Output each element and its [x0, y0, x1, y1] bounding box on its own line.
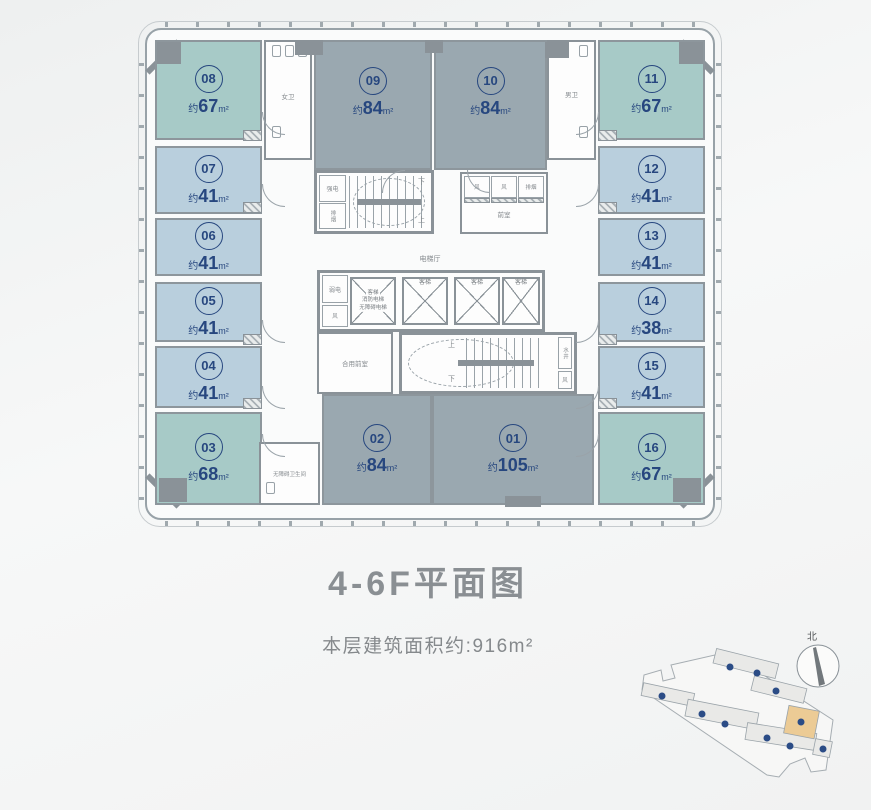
weak-electric-room: 弱电: [322, 275, 348, 303]
stair-landing: [458, 360, 534, 366]
unit-area-label: 约41m²: [631, 254, 672, 273]
up-label: 上: [448, 342, 455, 350]
unit-number-circle: 15: [638, 352, 666, 380]
hatch-block: [598, 334, 617, 345]
door-arc: [576, 184, 599, 207]
strong-electric-room: 强电: [319, 175, 346, 202]
hatch-block: [464, 198, 490, 203]
unit-number-circle: 03: [195, 433, 223, 461]
unit-area-label: 约41m²: [188, 187, 229, 206]
building-marker-dot: [754, 670, 761, 677]
shared-anteroom-room: 合用前室: [317, 332, 393, 394]
water-shaft: 水井: [558, 337, 572, 369]
building-marker-dot: [787, 743, 794, 750]
shared-anteroom-label: 合用前室: [319, 361, 391, 368]
unit-area-label: 约84m²: [353, 99, 394, 118]
unit-area-label: 约41m²: [631, 384, 672, 403]
elevator-hall-label: 电梯厅: [400, 256, 460, 264]
room-label: 男卫: [549, 92, 594, 99]
unit-number-circle: 12: [638, 155, 666, 183]
column-block: [159, 478, 187, 502]
door-arc: [576, 386, 599, 409]
column-block: [295, 40, 323, 55]
elevator-shaft: 客梯: [454, 277, 500, 325]
elevator-label: 客梯: [404, 280, 446, 287]
unit-number-circle: 06: [195, 222, 223, 250]
elevator-label: 客梯: [504, 280, 538, 287]
hatch-block: [598, 130, 617, 141]
hatch-block: [598, 202, 617, 213]
unit-area-label: 约67m²: [631, 97, 672, 116]
caption: 4-6F平面图 本层建筑面积约:916m²: [145, 556, 711, 658]
unit-area-label: 约67m²: [188, 97, 229, 116]
facade-ticks: [165, 22, 695, 27]
unit-number-circle: 08: [195, 65, 223, 93]
room-label: 女卫: [266, 94, 310, 101]
column-block: [545, 42, 569, 58]
down-label: 下: [418, 179, 425, 187]
unit-area-label: 约84m²: [357, 456, 398, 475]
unit-number-circle: 10: [477, 67, 505, 95]
column-block: [673, 478, 701, 502]
building-marker-dot: [699, 711, 706, 718]
unit-area-label: 约41m²: [188, 254, 229, 273]
floor-plan: 08 约67m² 07 约41m² 06 约41m² 05 约41m² 04 约…: [145, 28, 715, 520]
stairwell-top: 强电 排烟 下 上: [314, 170, 434, 234]
hatch-block: [243, 130, 262, 141]
stairwell-bottom: 上 下 水井 风: [399, 332, 577, 394]
unit-number-circle: 13: [638, 222, 666, 250]
unit-05: 05 约41m²: [155, 282, 262, 342]
hatch-block: [243, 334, 262, 345]
elevator-label: 客梯 消防电梯 无障碍电梯: [352, 290, 394, 312]
building-marker-dot: [764, 735, 771, 742]
unit-area-label: 约67m²: [631, 465, 672, 484]
unit-area-label: 约41m²: [631, 187, 672, 206]
anteroom-label: 前室: [462, 212, 546, 219]
column-block: [679, 42, 703, 64]
smoke-exhaust-shaft: 排烟: [319, 203, 346, 229]
site-plan: 北: [628, 612, 868, 807]
vent-shaft: 风: [558, 371, 572, 389]
vent-shaft: 风: [491, 176, 517, 198]
building-marker-dot: [773, 688, 780, 695]
toilet-fixture: [285, 45, 294, 57]
facade-ticks: [716, 48, 721, 500]
elevator-label: 客梯: [456, 280, 498, 287]
door-arc: [262, 184, 285, 207]
hatch-block: [491, 198, 517, 203]
unit-14: 14 约38m²: [598, 282, 705, 342]
unit-09: 09 约84m²: [314, 40, 432, 170]
unit-number-circle: 07: [195, 155, 223, 183]
smoke-exhaust-shaft: 排烟: [518, 176, 544, 198]
north-label: 北: [807, 631, 817, 643]
page: 08 约67m² 07 约41m² 06 约41m² 05 约41m² 04 约…: [0, 0, 871, 810]
unit-number-circle: 04: [195, 352, 223, 380]
elevator-bank: 弱电 风 客梯 消防电梯 无障碍电梯 客梯 客梯 客梯: [317, 270, 545, 332]
unit-06: 06 约41m²: [155, 218, 262, 276]
column-block: [157, 42, 181, 64]
down-label: 下: [448, 376, 455, 384]
room-label: 无障碍卫生间: [261, 472, 318, 478]
unit-number-circle: 02: [363, 424, 391, 452]
building-marker-dot: [820, 746, 827, 753]
building-marker-dot: [798, 719, 805, 726]
elevator-shaft-combined: 客梯 消防电梯 无障碍电梯: [350, 277, 396, 325]
door-arc: [262, 320, 285, 343]
elevator-shaft: 客梯: [502, 277, 540, 325]
vent-shaft: 风: [322, 305, 348, 327]
unit-01: 01 约105m²: [432, 394, 594, 505]
door-arc: [576, 320, 599, 343]
hatch-block: [243, 398, 262, 409]
facade-ticks: [165, 521, 695, 526]
womens-restroom: 女卫: [264, 40, 312, 160]
unit-number-circle: 11: [638, 65, 666, 93]
elevator-shaft: 客梯: [402, 277, 448, 325]
building-marker-dot: [727, 664, 734, 671]
column-block: [505, 496, 541, 507]
hatch-block: [518, 198, 544, 203]
stair-landing: [357, 199, 421, 205]
door-arc: [262, 386, 285, 409]
unit-area-label: 约105m²: [488, 456, 539, 475]
mens-restroom: 男卫: [547, 40, 596, 160]
unit-number-circle: 16: [638, 433, 666, 461]
unit-number-circle: 09: [359, 67, 387, 95]
unit-area-label: 约41m²: [188, 319, 229, 338]
unit-number-circle: 14: [638, 287, 666, 315]
unit-13: 13 约41m²: [598, 218, 705, 276]
facade-ticks: [139, 48, 144, 500]
toilet-fixture: [272, 45, 281, 57]
page-title: 4-6F平面图: [145, 556, 711, 605]
page-subtitle: 本层建筑面积约:916m²: [145, 631, 711, 658]
unit-number-circle: 05: [195, 287, 223, 315]
hatch-block: [598, 398, 617, 409]
north-compass: 北: [797, 631, 839, 687]
unit-number-circle: 01: [499, 424, 527, 452]
door-arc: [576, 434, 599, 457]
unit-area-label: 约38m²: [631, 319, 672, 338]
unit-02: 02 约84m²: [322, 394, 432, 505]
building-marker-dot: [722, 721, 729, 728]
unit-area-label: 约84m²: [470, 99, 511, 118]
unit-10: 10 约84m²: [434, 40, 547, 170]
toilet-fixture: [579, 45, 588, 57]
accessible-restroom: 无障碍卫生间: [259, 442, 320, 505]
unit-area-label: 约68m²: [188, 465, 229, 484]
unit-area-label: 约41m²: [188, 384, 229, 403]
building-marker-dot: [659, 693, 666, 700]
up-label: 上: [418, 217, 425, 225]
toilet-fixture: [266, 482, 275, 494]
hatch-block: [243, 202, 262, 213]
column-block: [425, 40, 443, 53]
